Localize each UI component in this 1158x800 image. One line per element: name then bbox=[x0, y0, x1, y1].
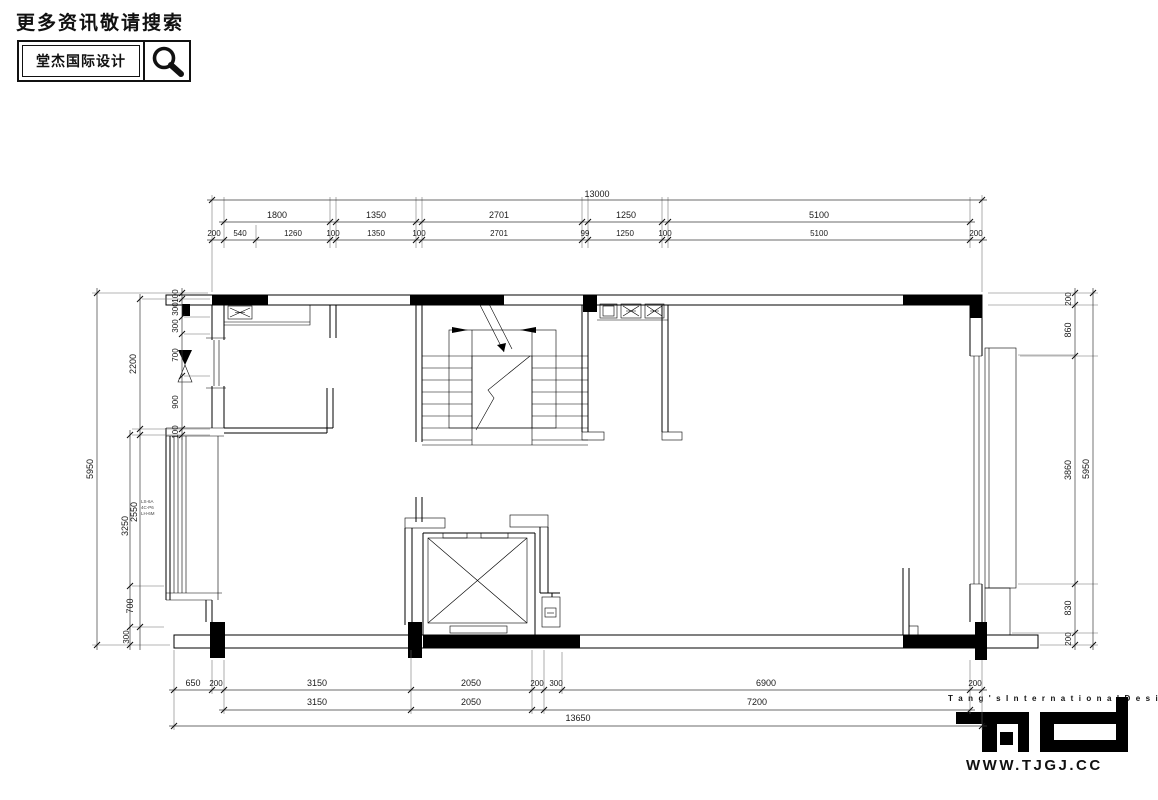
dim-label: 5100 bbox=[809, 210, 829, 220]
dim-label: 200 bbox=[1064, 632, 1073, 646]
dim-label: 300 bbox=[122, 630, 131, 644]
dim-label: 5950 bbox=[1081, 459, 1091, 479]
dim-label: 700 bbox=[125, 598, 135, 613]
svg-text:LH-6M: LH-6M bbox=[141, 511, 155, 516]
dim-label: 2200 bbox=[128, 354, 138, 374]
window-spec-note: LS-6A 4C-P6 LH-6M bbox=[141, 499, 155, 516]
dim-label: 830 bbox=[1063, 600, 1073, 615]
svg-text:LS-6A: LS-6A bbox=[141, 499, 154, 504]
dim-label: 1250 bbox=[616, 229, 634, 238]
dim-label: 3150 bbox=[307, 678, 327, 688]
dim-label: 2550 bbox=[129, 502, 139, 522]
dim-label: 100 bbox=[326, 229, 340, 238]
bay-window bbox=[166, 428, 224, 622]
dim-label: 300 bbox=[171, 302, 180, 316]
floor-plan-svg: 13000 1800 1350 2701 1250 5100 200 540 1… bbox=[0, 0, 1158, 800]
dim-label: 100 bbox=[412, 229, 426, 238]
dim-label: 860 bbox=[1063, 322, 1073, 337]
staircase bbox=[422, 300, 588, 445]
dim-label: 200 bbox=[530, 679, 544, 688]
dim-label: 300 bbox=[171, 319, 180, 333]
elevator bbox=[405, 497, 560, 635]
dim-label: 700 bbox=[171, 348, 180, 362]
fan-symbol bbox=[228, 306, 252, 319]
dim-label: 7200 bbox=[747, 697, 767, 707]
dim-label: 300 bbox=[549, 679, 563, 688]
kitchen-fixtures bbox=[597, 304, 668, 320]
dimension-lines bbox=[92, 195, 1098, 730]
dim-label: 1260 bbox=[284, 229, 302, 238]
dim-label: 900 bbox=[171, 395, 180, 409]
dim-label: 200 bbox=[209, 679, 223, 688]
dim-label: 200 bbox=[968, 679, 982, 688]
dim-label: 2050 bbox=[461, 697, 481, 707]
dim-label: 650 bbox=[185, 678, 200, 688]
dim-label: 13000 bbox=[584, 189, 609, 199]
dim-label: 3150 bbox=[307, 697, 327, 707]
svg-text:4C-P6: 4C-P6 bbox=[141, 505, 154, 510]
dim-label: 200 bbox=[1064, 292, 1073, 306]
dim-label: 6900 bbox=[756, 678, 776, 688]
dim-label: 200 bbox=[207, 229, 221, 238]
dim-label: 1250 bbox=[616, 210, 636, 220]
dim-label: 100 bbox=[171, 425, 180, 439]
dim-label: 3860 bbox=[1063, 460, 1073, 480]
dim-label: 2701 bbox=[490, 229, 508, 238]
dim-label: 5100 bbox=[810, 229, 828, 238]
dim-label: 99 bbox=[581, 229, 590, 238]
dim-label: 100 bbox=[171, 289, 180, 303]
dim-label: 2050 bbox=[461, 678, 481, 688]
dim-label: 1350 bbox=[366, 210, 386, 220]
drawing-sheet: 更多资讯敬请搜索 堂杰国际设计 T a n g ' s I n t e r n … bbox=[0, 0, 1158, 800]
dim-label: 13650 bbox=[565, 713, 590, 723]
dim-label: 5950 bbox=[85, 459, 95, 479]
dim-label: 100 bbox=[658, 229, 672, 238]
walls bbox=[166, 295, 1075, 660]
dim-label: 2701 bbox=[489, 210, 509, 220]
dim-label: 200 bbox=[969, 229, 983, 238]
dim-label: 540 bbox=[233, 229, 247, 238]
dim-label: 1350 bbox=[367, 229, 385, 238]
dim-label: 1800 bbox=[267, 210, 287, 220]
